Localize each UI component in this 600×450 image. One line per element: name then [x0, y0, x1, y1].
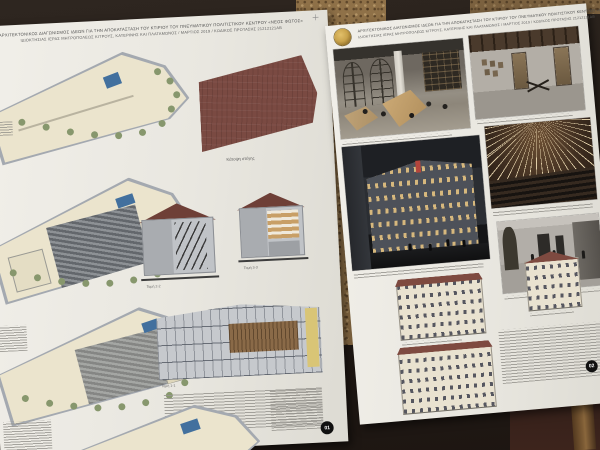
auditorium-interior-render	[484, 117, 597, 208]
section-bookshelves	[267, 210, 299, 239]
red-banner	[415, 160, 422, 173]
presentation-board-left: ΑΡΧΙΤΕΚΤΟΝΙΚΟΣ ΔΙΑΓΩΝΙΣΜΟΣ ΙΔΕΩΝ ΓΙΑ ΤΗΝ…	[0, 10, 348, 450]
exhibit-panel	[553, 47, 570, 85]
photograph-of-pinned-boards: ΑΡΧΙΤΕΚΤΟΝΙΚΟΣ ΔΙΑΓΩΝΙΣΜΟΣ ΙΔΕΩΝ ΓΙΑ ΤΗΝ…	[0, 0, 600, 450]
section-body	[239, 205, 305, 258]
plan-interior	[0, 52, 189, 167]
section-wall	[240, 208, 268, 258]
cross-section-2-2-drawing	[141, 202, 217, 281]
section-wall	[142, 220, 174, 276]
plan-notes-text	[0, 325, 28, 352]
ground-floor-plan-drawing	[0, 49, 192, 171]
section-2-2-caption: Τομή 2-2	[146, 284, 160, 290]
bookshelf-wall	[422, 49, 462, 92]
elevation-roof	[394, 272, 482, 287]
roof-plan-drawing	[198, 54, 320, 152]
left-board-header: ΑΡΧΙΤΕΚΤΟΝΙΚΟΣ ΔΙΑΓΩΝΙΣΜΟΣ ΙΔΕΩΝ ΓΙΑ ΤΗΝ…	[0, 17, 314, 44]
wall-frames-left	[482, 59, 488, 65]
adjacent-building-left	[342, 146, 372, 271]
text-column-right	[270, 388, 324, 430]
elevation-drawing-1	[396, 277, 487, 340]
section-3-3-caption: Τομή 3-3	[244, 265, 258, 271]
building-facade	[365, 156, 479, 254]
section-stairs	[175, 221, 208, 270]
section-body	[141, 217, 216, 277]
exhibit-panel	[512, 53, 528, 89]
section-lower-room	[269, 241, 301, 256]
night-exterior-building-render	[342, 135, 490, 271]
metropolis-emblem-logo	[333, 28, 351, 46]
arched-window	[341, 61, 366, 107]
chairs-silhouettes	[333, 49, 338, 54]
text-column-left	[3, 420, 53, 450]
presentation-board-right: ΑΡΧΙΤΕΚΤΟΝΙΚΟΣ ΔΙΑΓΩΝΙΣΜΟΣ ΙΔΕΩΝ ΓΙΑ ΤΗΝ…	[325, 3, 600, 424]
elevation-drawing-2	[398, 345, 497, 415]
small-notes-text	[0, 121, 13, 136]
cross-section-3-3-drawing	[238, 191, 305, 262]
pencil-marks: ＋	[311, 14, 319, 22]
roof-plan-caption: Κάτοψη στέγης	[226, 155, 254, 161]
elevation-drawing-small	[524, 257, 582, 312]
side-desk	[343, 105, 379, 131]
person-silhouette	[581, 250, 585, 258]
exhibition-gallery-render	[468, 26, 585, 119]
site-trees-row-3	[0, 314, 1, 321]
description-paragraph	[498, 321, 600, 384]
section-auditorium-volume	[229, 320, 299, 352]
plant-silhouette	[501, 226, 519, 270]
panel-number-badge: 01	[320, 421, 334, 435]
section-1-1-caption: Τομή 1-1	[161, 384, 175, 390]
library-interior-render	[333, 38, 470, 139]
longitudinal-section-drawing	[156, 300, 323, 380]
arched-window	[368, 57, 395, 105]
section-yellow-core	[305, 308, 319, 368]
